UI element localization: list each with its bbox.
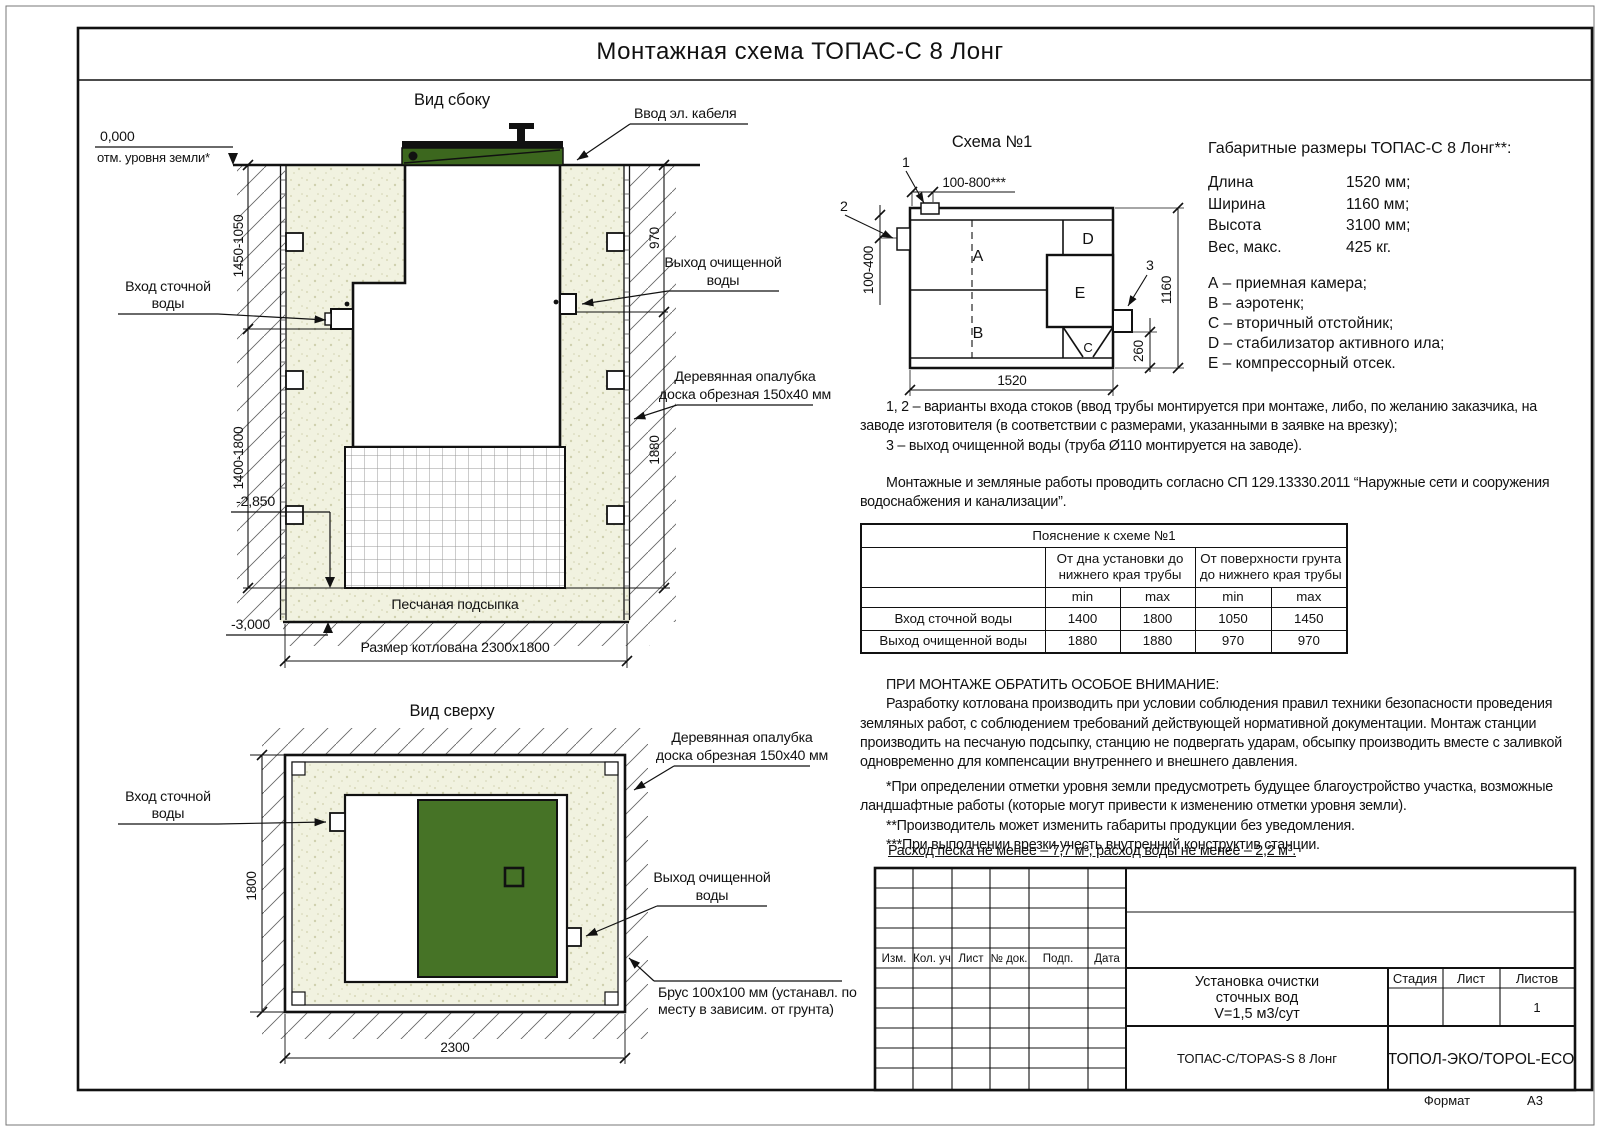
- table-group1: От дна установки до нижнего края трубы: [1045, 547, 1195, 587]
- station-ballast: [345, 447, 565, 588]
- svg-text:Вход сточной: Вход сточной: [125, 279, 211, 295]
- svg-text:воды: воды: [696, 888, 729, 904]
- stamp-company: ТОПОЛ-ЭКО/TOPOL-ECO: [1388, 1051, 1575, 1068]
- dim-lower-right: 1880: [647, 435, 662, 464]
- stamp-sheets-value: 1: [1533, 1000, 1540, 1015]
- stamp-sheets-label: Листов: [1516, 971, 1558, 986]
- dim-100-400: 100-400: [861, 246, 876, 294]
- callout-3: 3: [1146, 258, 1154, 274]
- stamp-col-data: Дата: [1094, 953, 1120, 965]
- table-title: Пояснение к схеме №1: [861, 524, 1347, 547]
- table-row: Вход сточной воды 1400 1800 1050 1450: [861, 607, 1347, 630]
- schema-1: Схема №1 A B C D E 1 2 3: [840, 133, 1184, 396]
- svg-text:Ввод эл. кабеля: Ввод эл. кабеля: [634, 106, 736, 122]
- dim-lower-left: 1400-1800: [231, 427, 246, 490]
- stamp-col-ndok: № док.: [991, 953, 1028, 965]
- min-header: min: [1195, 587, 1271, 607]
- svg-text:-2,850: -2,850: [236, 494, 275, 510]
- svg-text:Выход очищенной: Выход очищенной: [653, 870, 770, 886]
- consumption-note: Расход песка не менее – 7,7 м³, расход в…: [888, 843, 1296, 859]
- notes-inlet-variants: 1, 2 – варианты входа стоков (ввод трубы…: [860, 398, 1566, 456]
- svg-text:-3,000: -3,000: [231, 617, 270, 633]
- format-value: А3: [1527, 1093, 1543, 1108]
- callout-2: 2: [840, 199, 848, 215]
- svg-text:воды: воды: [707, 273, 740, 289]
- top-view-title: Вид сверху: [410, 702, 496, 720]
- callout-1: 1: [902, 155, 910, 171]
- spec-row: Ширина1160 мм;: [1208, 196, 1568, 218]
- dim-upper-right: 970: [647, 227, 662, 249]
- specs-block: Габаритные размеры ТОПАС-С 8 Лонг**: Дли…: [1208, 140, 1568, 374]
- level-zero: 0,000 отм. уровня земли*: [95, 129, 238, 165]
- stamp-col-izm: Изм.: [882, 953, 907, 965]
- top-view: Вид сверху Вход сточной воды Деревянная …: [118, 702, 857, 1064]
- side-view-title: Вид сбоку: [414, 91, 491, 109]
- stamp-model: ТОПАС-С/TOPAS-S 8 Лонг: [1177, 1051, 1337, 1066]
- max-header: max: [1271, 587, 1347, 607]
- legend-item: В – аэротенк;: [1208, 294, 1568, 314]
- dim-upper-left: 1450-1050: [231, 215, 246, 278]
- svg-text:Деревянная опалубка: Деревянная опалубка: [671, 730, 813, 746]
- table-group2: От поверхности грунта до нижнего края тр…: [1195, 547, 1347, 587]
- svg-text:доска обрезная 150x40 мм: доска обрезная 150x40 мм: [659, 387, 831, 403]
- inlet-stub-top: [330, 813, 345, 831]
- legend-item: С – вторичный отстойник;: [1208, 314, 1568, 334]
- dim-1800: 1800: [244, 871, 259, 900]
- outlet-stub-top: [567, 928, 581, 946]
- svg-text:Деревянная опалубка: Деревянная опалубка: [674, 369, 816, 385]
- side-view: Вид сбоку: [95, 91, 831, 668]
- format-label: Формат: [1424, 1093, 1470, 1108]
- compartment-d: D: [1082, 231, 1094, 248]
- title-block: Изм. Кол. уч Лист № док. Подп. Дата Уста…: [875, 868, 1575, 1108]
- compartment-b: B: [973, 325, 984, 342]
- table-row: Выход очищенной воды 1880 1880 970 970: [861, 630, 1347, 653]
- specs-title: Габаритные размеры ТОПАС-С 8 Лонг**:: [1208, 140, 1568, 158]
- dim-1160: 1160: [1159, 276, 1174, 304]
- beam-label: Брус 100x100 мм (устанавл. по месту в за…: [629, 958, 857, 1018]
- svg-text:отм. уровня земли*: отм. уровня земли*: [97, 150, 210, 165]
- compartment-legend: А – приемная камера; В – аэротенк; С – в…: [1208, 274, 1568, 374]
- compartment-c: C: [1083, 340, 1092, 355]
- dim-2300: 2300: [440, 1040, 469, 1055]
- pit-size-label: Размер котлована 2300x1800: [360, 640, 549, 656]
- cable-entry-label: Ввод эл. кабеля: [577, 106, 748, 160]
- dim-1520: 1520: [997, 373, 1026, 388]
- station-lid: [402, 123, 563, 165]
- stamp-project-line2: сточных вод: [1216, 990, 1299, 1006]
- dim-100-800: 100-800***: [942, 175, 1006, 190]
- dim-260: 260: [1131, 340, 1146, 362]
- explanation-table: Пояснение к схеме №1 От дна установки до…: [860, 523, 1348, 654]
- stamp-project-line3: V=1,5 м3/сут: [1214, 1006, 1300, 1022]
- spec-row: Вес, макс.425 кг.: [1208, 239, 1568, 261]
- max-header: max: [1120, 587, 1195, 607]
- stamp-col-list: Лист: [959, 953, 985, 965]
- legend-item: Е – компрессорный отсек.: [1208, 354, 1568, 374]
- legend-item: D – стабилизатор активного ила;: [1208, 334, 1568, 354]
- compartment-a: A: [973, 248, 984, 265]
- svg-text:Брус 100x100 мм (устанавл. по: Брус 100x100 мм (устанавл. по: [658, 985, 857, 1001]
- svg-text:Выход очищенной: Выход очищенной: [664, 255, 781, 271]
- stamp-col-podp: Подп.: [1043, 953, 1074, 965]
- svg-text:0,000: 0,000: [100, 129, 135, 145]
- legend-item: А – приемная камера;: [1208, 274, 1568, 294]
- stamp-project-line1: Установка очистки: [1195, 974, 1319, 990]
- compartment-e: E: [1075, 285, 1086, 302]
- vent-pipe-icon: [517, 128, 525, 141]
- sand-bed-label: Песчаная подсыпка: [391, 597, 518, 613]
- spec-row: Длина1520 мм;: [1208, 174, 1568, 196]
- stamp-col-koluch: Кол. уч: [913, 953, 951, 965]
- svg-text:воды: воды: [152, 806, 185, 822]
- svg-text:Вход сточной: Вход сточной: [125, 789, 211, 805]
- drawing-sheet: Вид сбоку: [0, 0, 1600, 1131]
- notes-attention: ПРИ МОНТАЖЕ ОБРАТИТЬ ОСОБОЕ ВНИМАНИЕ: Ра…: [860, 676, 1566, 772]
- page-title: Монтажная схема ТОПАС-С 8 Лонг: [0, 38, 1600, 66]
- formwork-label-top: Деревянная опалубка доска обрезная 150x4…: [634, 730, 828, 790]
- spec-row: Высота3100 мм;: [1208, 217, 1568, 239]
- station-lid-top: [418, 800, 557, 977]
- notes-sp-reference: Монтажные и земляные работы проводить со…: [860, 474, 1566, 513]
- svg-text:месту в зависим. от грунта): месту в зависим. от грунта): [658, 1002, 834, 1018]
- svg-text:воды: воды: [152, 296, 185, 312]
- schema-title: Схема №1: [952, 133, 1032, 151]
- stamp-stage-label: Стадия: [1393, 971, 1437, 986]
- stamp-sheet-label: Лист: [1457, 971, 1485, 986]
- min-header: min: [1045, 587, 1120, 607]
- svg-text:доска обрезная 150x40 мм: доска обрезная 150x40 мм: [656, 748, 828, 764]
